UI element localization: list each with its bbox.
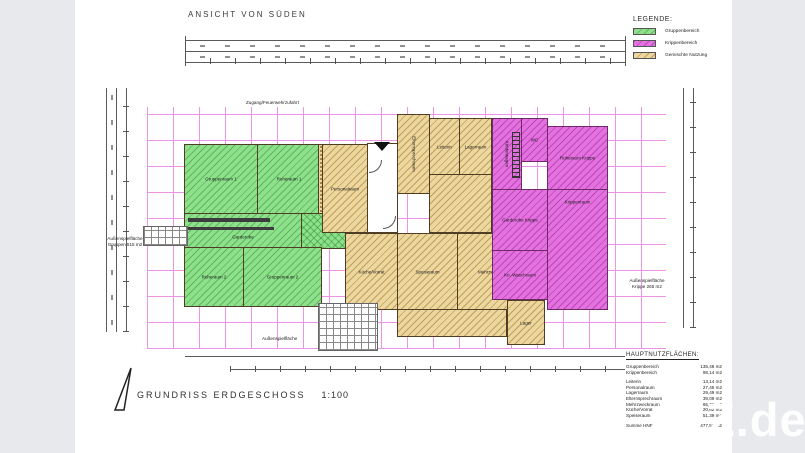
room-label: Krippenraum xyxy=(565,199,591,204)
row-label: Summe HNF xyxy=(626,423,653,429)
legend-title: LEGENDE: xyxy=(633,16,707,23)
room-label: Speiseraum xyxy=(415,269,439,274)
room-elternsprechraum: Elternsprechraum xyxy=(397,114,430,194)
room-label: Lagerraum xyxy=(465,144,487,149)
play-area-right-line2: Krippe 265 m2 xyxy=(624,284,670,290)
room-label: Elternsprechraum xyxy=(411,136,416,172)
legend: LEGENDE: Gruppenbereich Krippenbereich G… xyxy=(633,16,707,64)
room-label: Kinderwagen xyxy=(504,141,509,167)
garderobe-bench xyxy=(188,227,274,230)
garderobe-bench xyxy=(188,218,270,222)
play-area-left-label: Außenspielfläche Gruppen 515 m2 xyxy=(103,236,147,247)
dimension-ticks xyxy=(185,58,625,64)
room-label: Küche/Vorrat xyxy=(358,269,384,274)
room-kueche-vorrat: Küche/Vorrat xyxy=(345,233,398,310)
room-ruheraum-krippe: Ruheraum Krippe xyxy=(547,126,608,190)
legend-swatch-tan xyxy=(633,52,656,59)
room-speiseraum: Speiseraum xyxy=(397,233,458,310)
dimension-line xyxy=(116,88,117,332)
table-row: Krippenbereich 98,14 m2 xyxy=(626,370,722,376)
view-title: ANSICHT VON SÜDEN xyxy=(188,10,307,19)
room-label: Ruheraum Krippe xyxy=(560,155,595,160)
terrace-strip xyxy=(397,309,507,337)
room-label: Lager xyxy=(520,320,532,325)
room-label: Leiterin xyxy=(437,144,452,149)
room-label: Gruppenraum 1 xyxy=(205,176,237,181)
room-label: WC xyxy=(531,137,539,142)
legend-label: Gemischte Nutzung xyxy=(665,53,707,58)
row-label: Speiseraum xyxy=(626,413,651,419)
dimension-line xyxy=(185,356,625,357)
plan-scale: 1:100 xyxy=(322,390,350,400)
room-leiterin: Leiterin xyxy=(429,118,460,175)
play-area-left-line2: Gruppen 515 m2 xyxy=(103,242,147,248)
legend-swatch-green xyxy=(633,28,656,35)
room-krippenraum: Krippenraum xyxy=(547,189,608,310)
video-frame: ANSICHT VON SÜDEN LEGENDE: Gruppenbereic… xyxy=(0,0,805,453)
hall-corridor xyxy=(429,174,492,233)
plan-title: GRUNDRISS ERDGESCHOSS1:100 xyxy=(137,390,349,400)
dimension-numbers xyxy=(200,45,610,47)
play-area-left-line1: Außenspielfläche xyxy=(103,236,147,242)
entrance-arrow-icon xyxy=(374,142,390,151)
room-label: Kri.-Waschraum xyxy=(504,272,536,277)
room-gruppenraum-1: Gruppenraum 1 xyxy=(184,144,258,214)
room-gruppenraum-2: Gruppenraum 2 xyxy=(243,247,322,307)
dimension-line xyxy=(625,36,626,66)
terrace-grid xyxy=(143,226,188,246)
legend-item-krippenbereich: Krippenbereich xyxy=(633,40,707,47)
dimension-line xyxy=(106,88,107,332)
legend-item-gemischte-nutzung: Gemischte Nutzung xyxy=(633,52,707,59)
access-label: Zugang/Feuerwehrzufahrt xyxy=(246,100,299,106)
play-area-right-line1: Außenspielfläche xyxy=(624,278,670,284)
legend-swatch-purple xyxy=(633,40,656,47)
station-watermark: Z.de xyxy=(706,392,805,447)
room-label: Ruheraum 1 xyxy=(277,176,302,181)
play-area-bottom-label: Außenspielfläche xyxy=(262,336,297,342)
row-value: 98,14 m2 xyxy=(703,370,722,376)
room-label: Garderobe xyxy=(232,235,254,240)
dimension-ticks xyxy=(230,366,625,372)
legend-label: Krippenbereich xyxy=(665,41,697,46)
room-lager: Lager xyxy=(507,300,545,345)
plan-title-text: GRUNDRISS ERDGESCHOSS xyxy=(137,390,306,400)
room-label: Ruheraum 2 xyxy=(202,274,227,279)
room-lagerraum: Lagerraum xyxy=(459,118,492,175)
room-label: Garderobe Krippe xyxy=(502,217,538,222)
dimension-ticks xyxy=(690,88,696,328)
room-kri-waschraum: Kri.-Waschraum xyxy=(492,250,548,300)
dimension-ticks xyxy=(123,88,129,332)
dimension-numbers xyxy=(111,95,113,325)
room-garderobe-krippe: Garderobe Krippe xyxy=(492,189,548,251)
stair-symbol xyxy=(512,132,520,178)
dimension-line xyxy=(185,40,625,41)
dimension-numbers xyxy=(200,56,610,58)
area-table-title: HAUPTNUTZFLÄCHEN: xyxy=(626,352,699,360)
dimension-line xyxy=(683,88,684,328)
room-ruheraum-1: Ruheraum 1 xyxy=(257,144,321,214)
dimension-line xyxy=(185,51,625,52)
terrace-grid xyxy=(318,303,378,351)
row-label: Krippenbereich xyxy=(626,370,657,376)
room-label: Gruppenraum 2 xyxy=(267,274,299,279)
north-arrow-icon xyxy=(111,366,137,414)
dimension-line xyxy=(185,36,186,66)
room-ruheraum-2: Ruheraum 2 xyxy=(184,247,244,307)
legend-label: Gruppenbereich xyxy=(665,29,699,34)
room-personalraum: Personalraum xyxy=(322,144,368,233)
play-area-right-label: Außenspielfläche Krippe 265 m2 xyxy=(624,278,670,289)
room-label: Personalraum xyxy=(331,186,359,191)
legend-item-gruppenbereich: Gruppenbereich xyxy=(633,28,707,35)
room-wc-krippe: WC xyxy=(521,118,548,162)
